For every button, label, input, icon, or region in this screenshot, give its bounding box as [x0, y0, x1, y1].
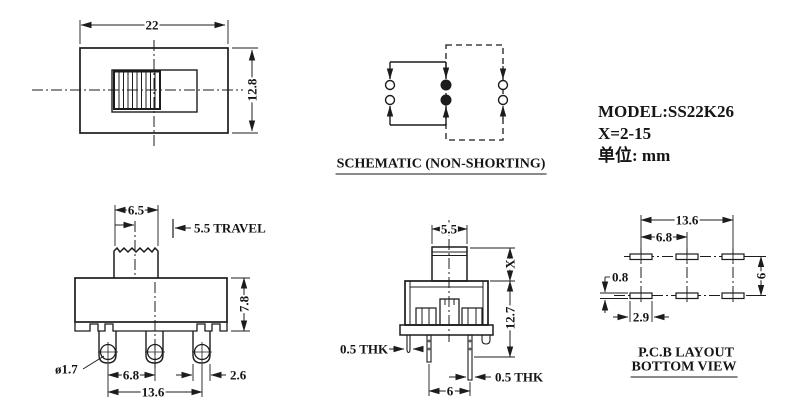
- front-pin-span-dim: 13.6: [141, 386, 166, 399]
- pcb-pad-height-dim: 0.8: [611, 271, 629, 284]
- front-body-height-dim: 7.8: [238, 295, 251, 313]
- top-view-width-dim: 22: [145, 19, 160, 32]
- pcb-span-dim: 13.6: [675, 214, 700, 227]
- front-knob-width-dim: 6.5: [127, 204, 145, 217]
- schematic-drawing: [386, 45, 508, 140]
- technical-drawing-page: 22 12.8 SCHEMATIC (NON-SHORTING) MODEL:S…: [0, 0, 800, 420]
- pcb-row-pitch-dim: 6: [755, 272, 768, 281]
- front-hole-diameter-dim: ø1.7: [54, 363, 79, 376]
- pcb-caption-line2: BOTTOM VIEW: [631, 361, 738, 378]
- pcb-pad-width-dim: 2.9: [632, 311, 650, 324]
- side-thickness-left-dim: 0.5 THK: [339, 343, 389, 356]
- side-knob-width-dim: 5.5: [440, 223, 458, 236]
- top-view-height-dim: 12.8: [246, 78, 259, 103]
- front-terminal-width-dim: 2.6: [229, 369, 247, 382]
- unit-note: 单位: mm: [597, 147, 671, 164]
- side-body-height-dim: 12.7: [504, 306, 517, 331]
- x-range: X=2-15: [597, 125, 652, 142]
- side-actuator-height-dim: X: [504, 258, 517, 269]
- top-view-drawing: [32, 20, 258, 146]
- front-travel-dim: 5.5 TRAVEL: [193, 222, 267, 235]
- pcb-pitch-dim: 6.8: [655, 231, 673, 244]
- side-thickness-right-dim: 0.5 THK: [494, 371, 544, 384]
- model-number: MODEL:SS22K26: [597, 103, 735, 120]
- side-pin-pitch-dim: 6: [446, 385, 455, 398]
- front-pin-pitch-dim: 6.8: [122, 369, 140, 382]
- pcb-layout-drawing: [600, 215, 766, 322]
- schematic-caption: SCHEMATIC (NON-SHORTING): [336, 158, 547, 175]
